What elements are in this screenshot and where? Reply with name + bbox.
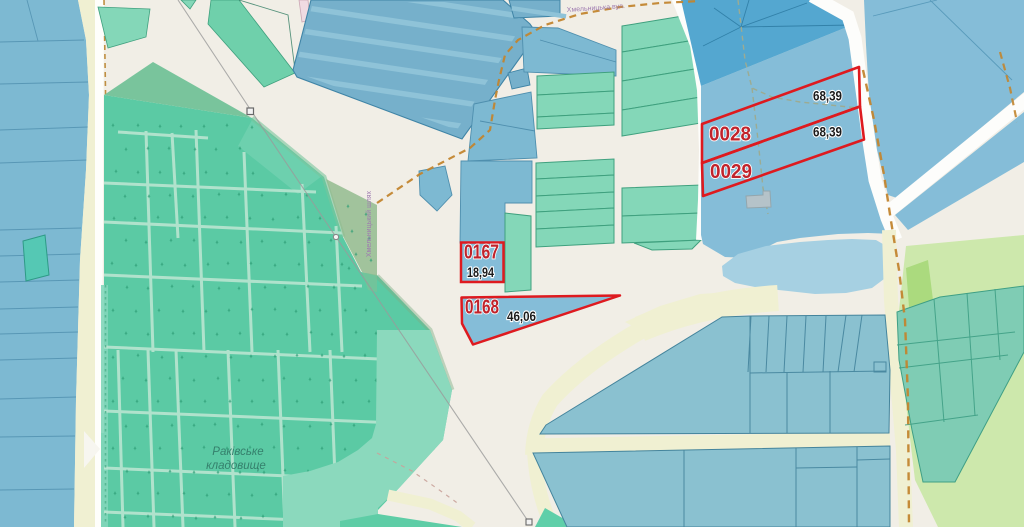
svg-text:18,94: 18,94 — [467, 264, 494, 280]
svg-text:Хмельницький шлях: Хмельницький шлях — [365, 190, 373, 257]
svg-text:0028: 0028 — [709, 123, 751, 146]
svg-text:68,39: 68,39 — [813, 124, 842, 140]
svg-text:46,06: 46,06 — [507, 308, 536, 324]
svg-text:68,39: 68,39 — [813, 88, 842, 104]
svg-text:0029: 0029 — [710, 160, 752, 183]
svg-text:кладовище: кладовище — [206, 460, 266, 472]
svg-text:0167: 0167 — [464, 242, 499, 264]
svg-text:0168: 0168 — [465, 297, 499, 319]
svg-text:Раківське: Раківське — [212, 446, 263, 458]
